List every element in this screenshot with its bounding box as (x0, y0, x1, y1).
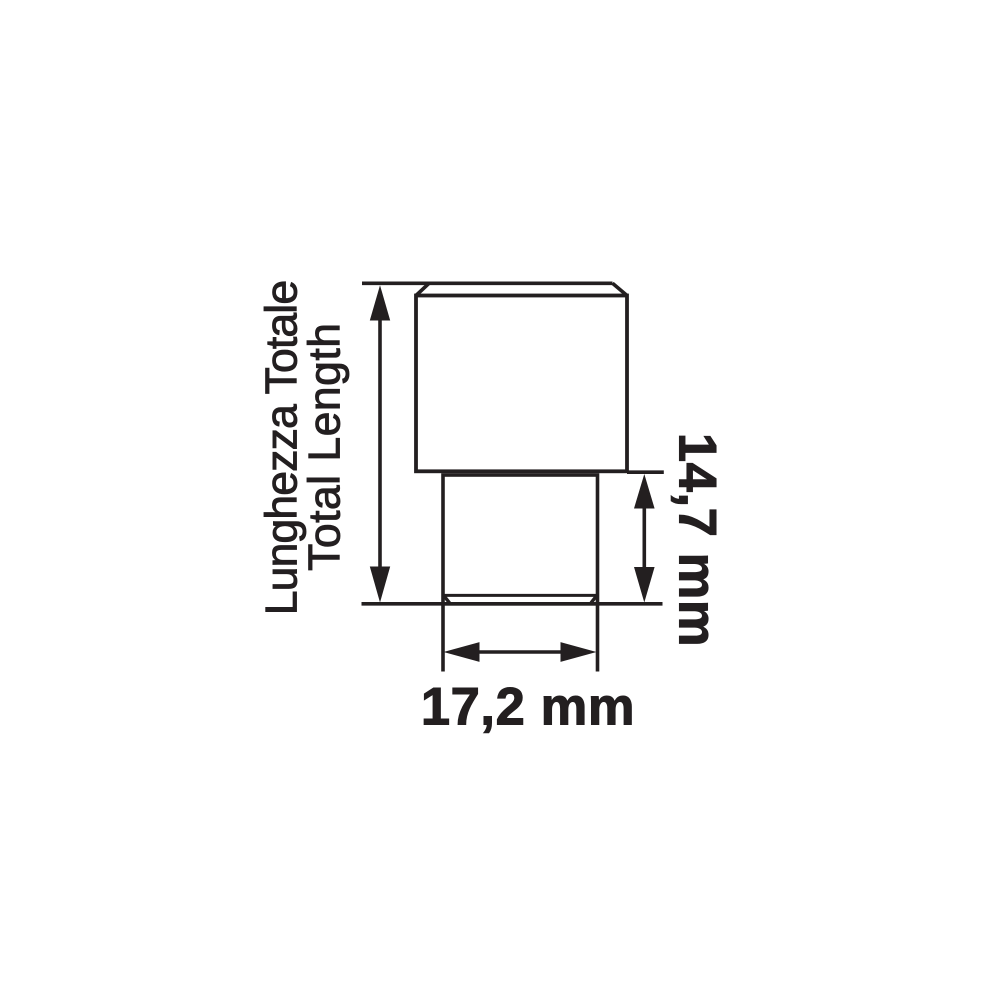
svg-text:Lunghezza Totale: Lunghezza Totale (258, 281, 307, 615)
svg-text:Total Length: Total Length (301, 322, 350, 570)
svg-text:14,7 mm: 14,7 mm (668, 433, 727, 647)
svg-text:17,2 mm: 17,2 mm (421, 678, 635, 737)
